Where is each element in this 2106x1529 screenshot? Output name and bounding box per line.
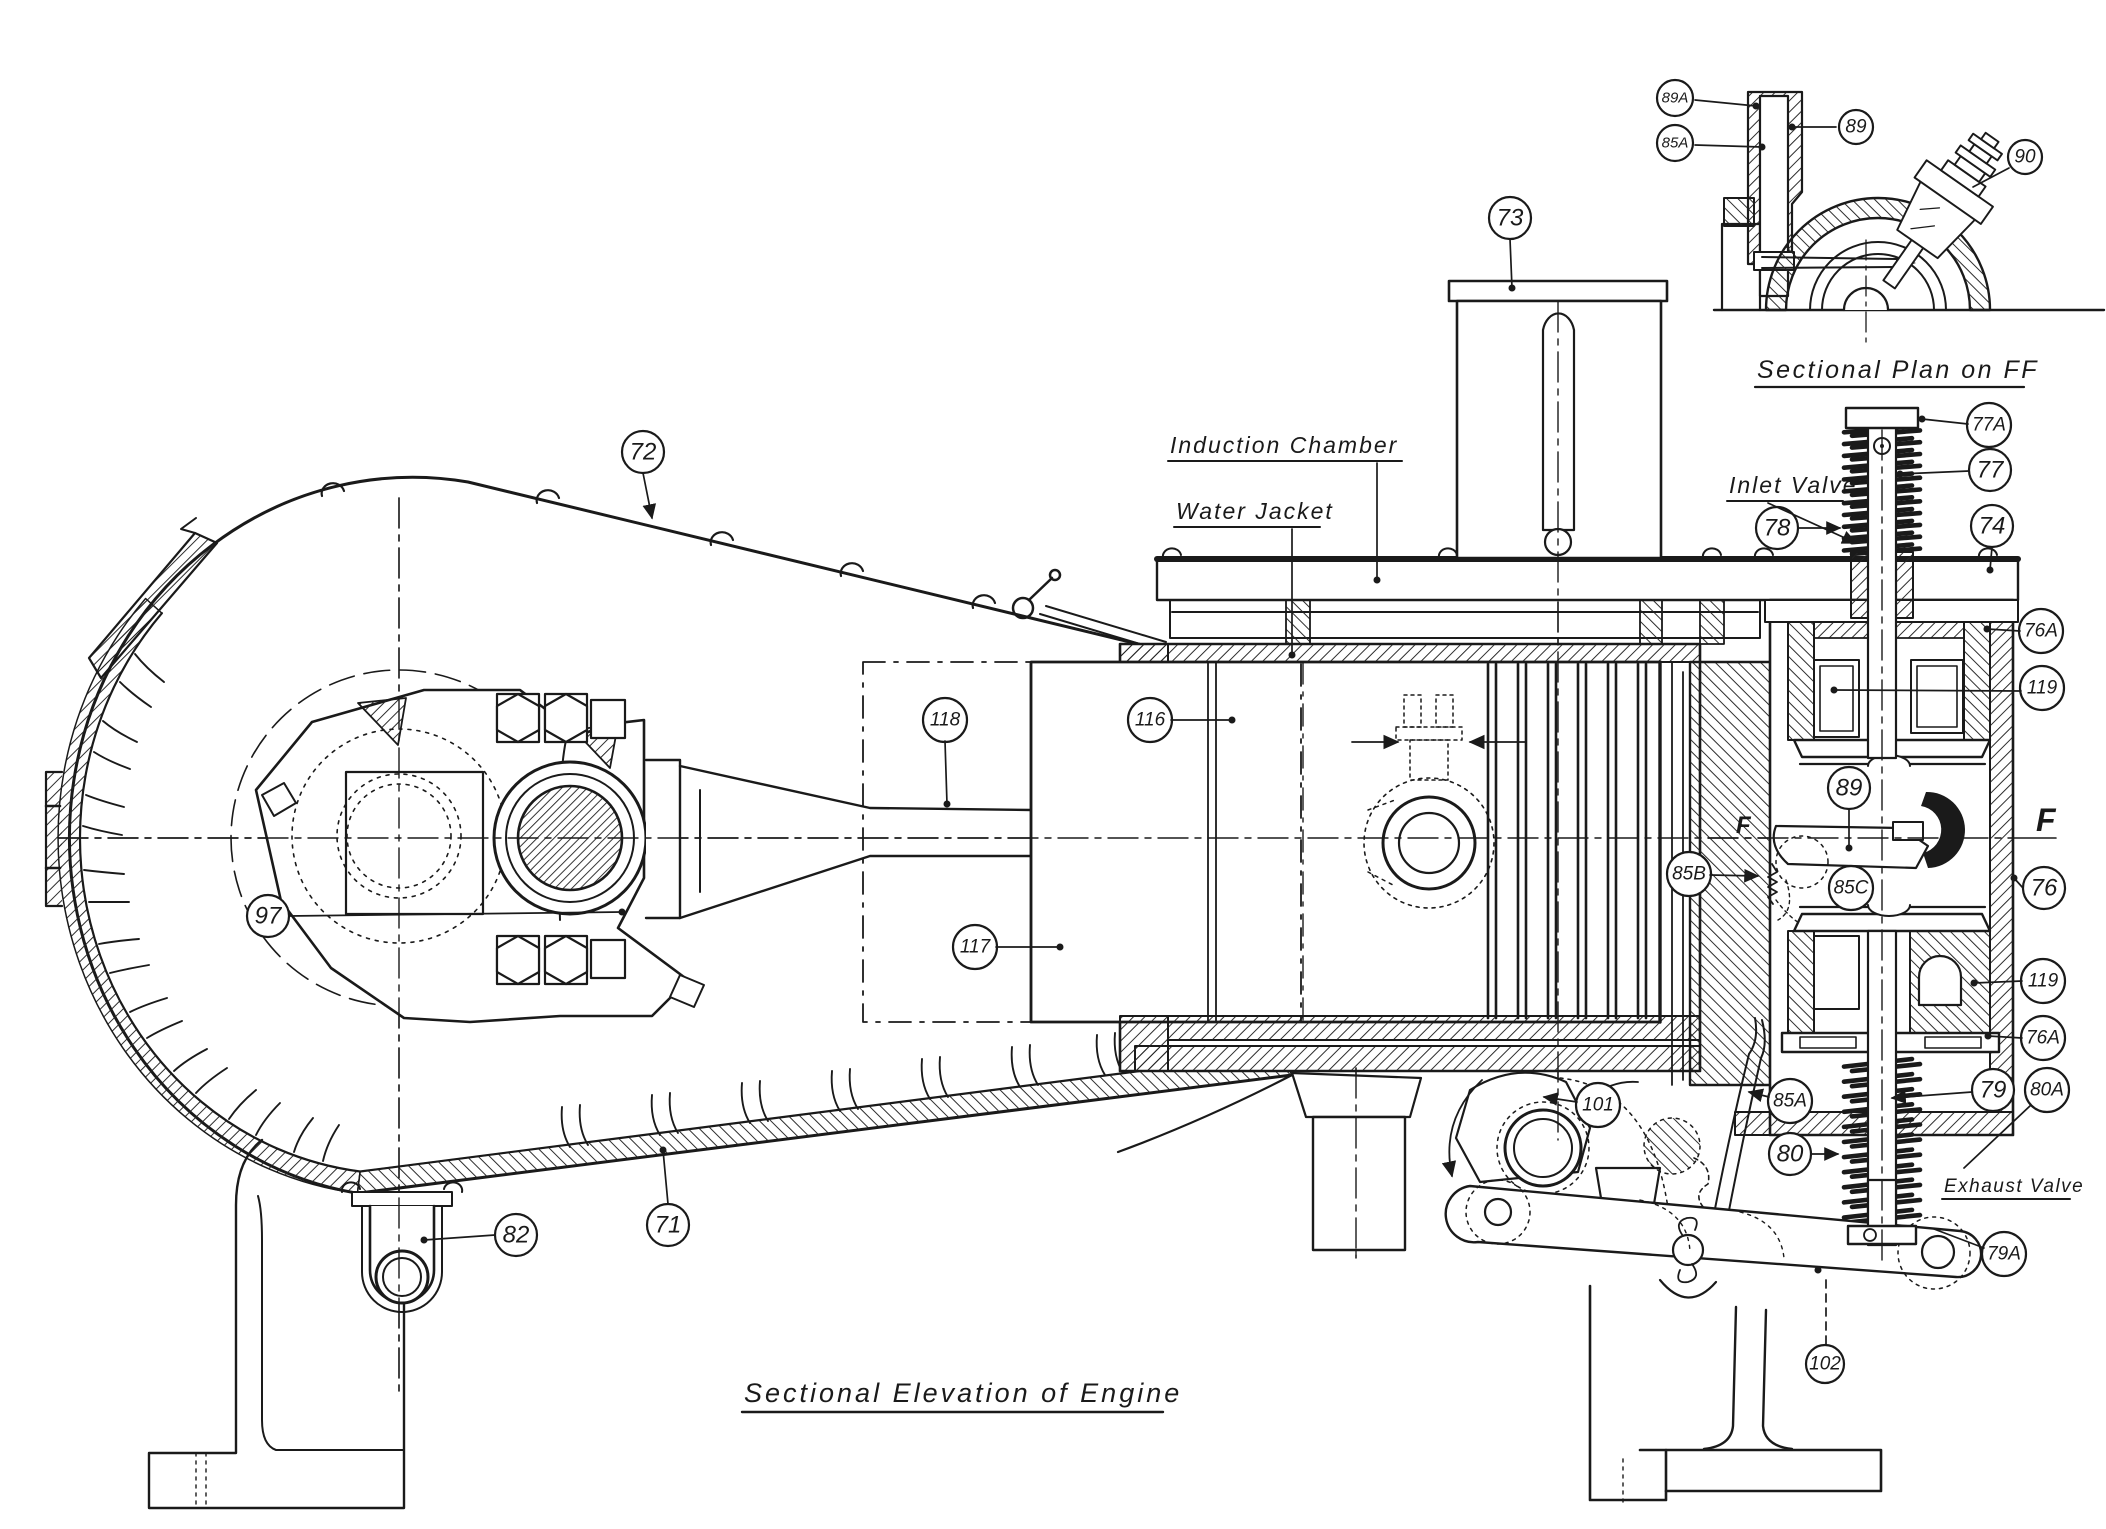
svg-text:89: 89 (1845, 117, 1867, 138)
svg-text:Water Jacket: Water Jacket (1176, 498, 1334, 524)
svg-text:72: 72 (630, 439, 657, 466)
svg-text:77A: 77A (1972, 415, 2006, 436)
svg-text:97: 97 (255, 903, 283, 930)
svg-text:89: 89 (1836, 775, 1863, 802)
svg-text:101: 101 (1582, 1095, 1614, 1116)
svg-text:90: 90 (2014, 147, 2036, 168)
svg-text:76A: 76A (2024, 621, 2058, 642)
svg-text:73: 73 (1497, 205, 1524, 232)
svg-text:79: 79 (1980, 1077, 2007, 1104)
svg-text:79A: 79A (1987, 1244, 2021, 1265)
svg-text:Induction Chamber: Induction Chamber (1170, 432, 1398, 458)
svg-text:85A: 85A (1662, 135, 1689, 152)
svg-text:119: 119 (2028, 971, 2059, 992)
svg-text:76: 76 (2031, 875, 2058, 902)
svg-text:118: 118 (930, 710, 961, 731)
svg-text:76A: 76A (2026, 1028, 2060, 1049)
svg-text:89A: 89A (1662, 90, 1689, 107)
svg-text:Inlet Valve: Inlet Valve (1729, 472, 1858, 498)
svg-text:77: 77 (1977, 457, 2005, 484)
svg-text:78: 78 (1764, 515, 1791, 542)
svg-text:80A: 80A (2030, 1080, 2064, 1101)
svg-text:102: 102 (1809, 1354, 1841, 1375)
svg-text:85C: 85C (1834, 878, 1869, 899)
svg-text:116: 116 (1135, 710, 1166, 731)
svg-text:80: 80 (1777, 1141, 1804, 1168)
svg-text:71: 71 (655, 1212, 682, 1239)
svg-text:119: 119 (2027, 678, 2058, 699)
svg-text:74: 74 (1979, 513, 2006, 540)
svg-text:85B: 85B (1672, 864, 1706, 885)
svg-text:Sectional Elevation of Engine: Sectional Elevation of Engine (744, 1378, 1182, 1408)
svg-text:Sectional Plan on FF: Sectional Plan on FF (1757, 356, 2039, 384)
svg-text:F: F (2036, 802, 2057, 838)
svg-text:Exhaust Valve: Exhaust Valve (1944, 1176, 2084, 1197)
svg-text:85A: 85A (1773, 1091, 1807, 1112)
svg-text:F: F (1736, 812, 1752, 839)
svg-text:117: 117 (960, 937, 992, 958)
svg-text:82: 82 (503, 1222, 530, 1249)
